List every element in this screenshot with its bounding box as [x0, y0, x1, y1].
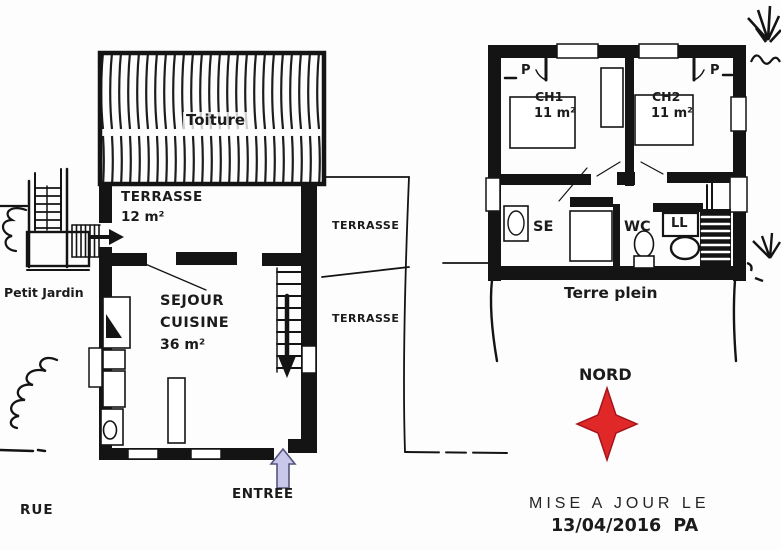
- window: [191, 449, 221, 459]
- toilet-tank: [634, 256, 654, 268]
- bed: [510, 97, 575, 148]
- stairs-entry-arrowhead: [109, 229, 124, 245]
- entrance-arrow: [271, 449, 295, 488]
- counter: [103, 350, 125, 369]
- ground-floor-plan: [0, 53, 512, 488]
- roof-label: Toiture: [183, 112, 248, 129]
- terre-plein-label: Terre plein: [564, 286, 658, 302]
- closet-left-label: P: [521, 64, 531, 77]
- living-room-label-line2: CUISINE: [160, 316, 229, 331]
- street-label: RUE: [20, 504, 54, 518]
- north-star-icon: [577, 388, 637, 460]
- wc-label: WC: [624, 220, 651, 235]
- laundry-label: LL: [671, 217, 688, 230]
- living-room-area: 36 m²: [160, 338, 205, 352]
- main-terrace-area: 12 m²: [121, 211, 164, 225]
- side-terrace-top-label: TERRASSE: [332, 220, 399, 231]
- street-edge-line: [0, 450, 45, 451]
- updated-date: 13/04/2016 PA: [551, 518, 698, 536]
- window: [302, 346, 316, 373]
- counter: [103, 371, 125, 407]
- living-room-label-line1: SEJOUR: [160, 294, 224, 309]
- window: [731, 97, 746, 131]
- north-label: NORD: [579, 367, 632, 383]
- shower-room-label: SE: [533, 220, 553, 235]
- main-terrace-label: TERRASSE: [121, 191, 203, 205]
- bedroom2-area: 11 m²: [651, 107, 693, 120]
- window: [486, 178, 500, 211]
- bathroom-fixtures: [504, 206, 699, 268]
- closet-right-label: P: [710, 64, 720, 77]
- upper-floor-plan: [486, 44, 747, 361]
- window: [557, 44, 598, 58]
- side-terrace-bottom-label: TERRASSE: [332, 313, 399, 324]
- upper-stairs: [700, 182, 731, 266]
- interior-stairs: [277, 268, 301, 378]
- shower: [570, 211, 612, 261]
- garden-label: Petit Jardin: [4, 287, 84, 300]
- bed: [601, 68, 623, 127]
- compass: [577, 388, 637, 460]
- spiral-doodle: [11, 358, 57, 428]
- plant-doodle-mid-right: [747, 233, 780, 281]
- updated-label: MISE A JOUR LE: [529, 496, 709, 512]
- label-pointer-line: [143, 263, 206, 290]
- washing-machine-drum: [671, 237, 699, 259]
- bush-doodle: [3, 208, 26, 251]
- bedroom1-label: CH1: [535, 91, 563, 104]
- window: [730, 177, 747, 212]
- island-counter: [168, 378, 185, 443]
- window: [639, 44, 678, 58]
- floor-plan-scan: Toiture TERRASSE 12 m² SEJOUR CUISINE 36…: [0, 0, 781, 550]
- window: [89, 348, 102, 387]
- plant-doodle-top-right: [748, 6, 781, 64]
- window: [128, 449, 158, 459]
- bedroom2-label: CH2: [652, 91, 680, 104]
- bedroom1-area: 11 m²: [534, 107, 576, 120]
- entrance-label: ENTREE: [232, 488, 294, 502]
- floor-plan-drawing: [0, 0, 781, 550]
